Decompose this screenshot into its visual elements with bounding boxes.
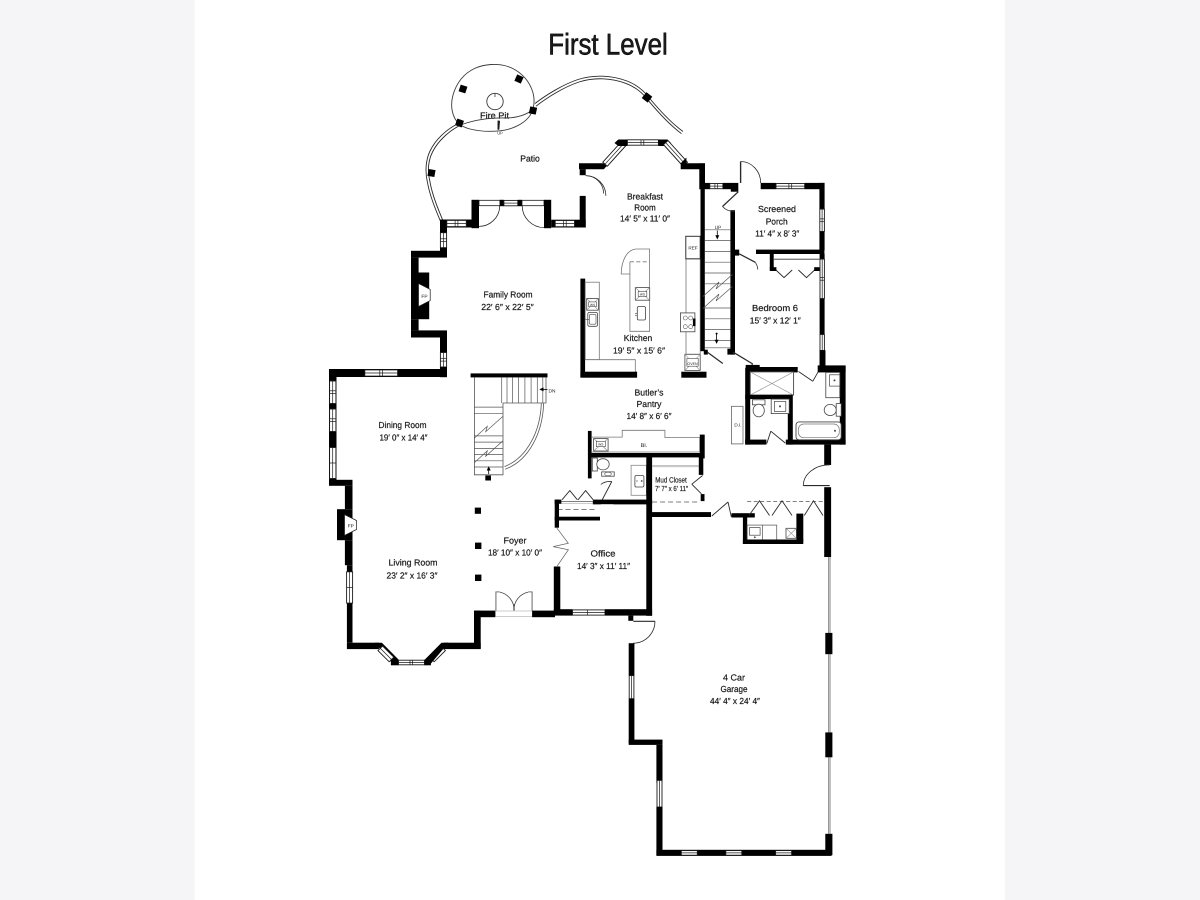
svg-text:UP: UP [497, 131, 503, 136]
svg-text:Dining Room: Dining Room [379, 420, 427, 430]
svg-text:First Level: First Level [548, 28, 668, 61]
svg-text:DN: DN [549, 388, 556, 394]
svg-text:Fire Pit: Fire Pit [480, 111, 510, 121]
svg-text:Pantry: Pantry [637, 399, 663, 409]
svg-text:Family Room: Family Room [484, 290, 533, 300]
svg-text:D.I.: D.I. [734, 423, 741, 428]
svg-text:WS: WS [640, 293, 645, 297]
svg-text:Breakfast: Breakfast [627, 192, 664, 202]
svg-text:Patio: Patio [520, 154, 540, 164]
svg-text:Porch: Porch [766, 217, 788, 227]
svg-text:BI.: BI. [641, 443, 648, 449]
svg-text:11′ 4″ x 8′ 3″: 11′ 4″ x 8′ 3″ [755, 229, 799, 239]
svg-text:Screened: Screened [758, 204, 796, 214]
svg-text:Bedroom 6: Bedroom 6 [752, 303, 798, 313]
svg-text:14′ 3″ x 11′ 11″: 14′ 3″ x 11′ 11″ [577, 561, 630, 571]
svg-text:Office: Office [591, 549, 616, 559]
svg-text:7′ 7″ x 6′ 11″: 7′ 7″ x 6′ 11″ [655, 484, 688, 493]
svg-text:WS: WS [590, 303, 595, 307]
svg-text:15′ 3″ x 12′ 1″: 15′ 3″ x 12′ 1″ [750, 316, 801, 326]
svg-text:18′ 10″ x 10′ 0″: 18′ 10″ x 10′ 0″ [488, 548, 542, 558]
svg-text:14′ 8″ x 6′ 6″: 14′ 8″ x 6′ 6″ [627, 411, 672, 421]
svg-text:19′ 5″ x 15′ 6″: 19′ 5″ x 15′ 6″ [613, 346, 665, 356]
svg-text:Living Room: Living Room [389, 558, 438, 568]
svg-text:44′ 4″ x 24′ 4″: 44′ 4″ x 24′ 4″ [710, 696, 760, 706]
svg-text:Kitchen: Kitchen [624, 333, 653, 343]
svg-text:FP: FP [421, 294, 427, 300]
svg-text:Garage: Garage [721, 684, 748, 694]
svg-text:FP: FP [348, 523, 354, 529]
svg-text:4 Car: 4 Car [723, 673, 745, 683]
svg-text:OVEN: OVEN [687, 362, 698, 366]
svg-text:Room: Room [634, 203, 656, 213]
svg-text:22′ 6″ x 22′ 5″: 22′ 6″ x 22′ 5″ [481, 302, 534, 312]
svg-text:UP: UP [715, 225, 722, 231]
svg-text:19′ 0″ x 14′ 4″: 19′ 0″ x 14′ 4″ [380, 433, 428, 443]
svg-text:REF: REF [688, 246, 697, 251]
svg-text:Foyer: Foyer [504, 536, 527, 546]
svg-text:Butler’s: Butler’s [635, 388, 665, 398]
svg-text:23′ 2″ x 16′ 3″: 23′ 2″ x 16′ 3″ [387, 571, 438, 581]
svg-text:14′ 5″ x 11′ 0″: 14′ 5″ x 11′ 0″ [620, 214, 670, 224]
svg-text:WS: WS [598, 443, 603, 447]
